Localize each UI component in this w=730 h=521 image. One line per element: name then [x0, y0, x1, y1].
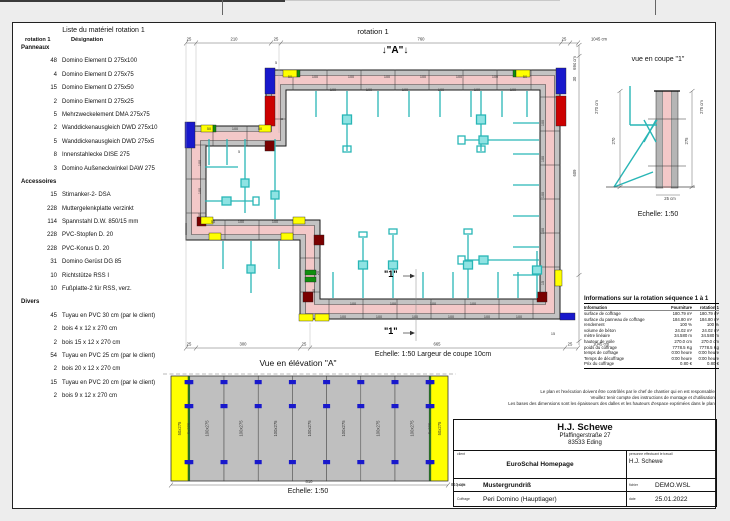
dim-label-top: 25	[562, 37, 567, 42]
material-row: 4Domino Element D 275x75	[21, 72, 186, 85]
material-qty: 2	[21, 326, 57, 339]
worker-value: H.J. Schewe	[629, 459, 714, 465]
material-qty: 2	[21, 366, 57, 379]
info-table-bottom-rule	[584, 368, 719, 369]
coupe-dim-label: 270	[611, 137, 616, 145]
panel-clamp	[391, 460, 398, 464]
panel-clamp	[323, 380, 330, 384]
dim-label-top: 1045 cm	[591, 37, 608, 42]
element-size-label: 100	[272, 220, 278, 224]
material-row: 2bois 4 x 12 x 270 cm	[21, 326, 186, 339]
fold-mark	[655, 0, 656, 15]
element-size-label: 5	[238, 150, 240, 154]
material-qty: 48	[21, 58, 57, 71]
section-a-mark: ↓"A"↓	[365, 45, 425, 56]
client-value: EuroSchal Homepage	[457, 461, 623, 468]
material-designation: Muttergelenkplatte verzinkt	[62, 206, 134, 219]
element-size-label: 100	[420, 75, 426, 79]
element-size-label: 50	[207, 127, 211, 131]
coupe-dim-label: 270 cm	[594, 100, 599, 114]
info-col-fourniture: Fourniture	[665, 305, 692, 310]
elevation-panel-label: 100x275	[410, 420, 415, 437]
material-designation: Mehrzweckelement DMA 275x75	[62, 112, 150, 125]
material-row: 2bois 15 x 12 x 270 cm	[21, 340, 186, 353]
info-table-title: Informations sur la rotation séquence 1 …	[584, 295, 719, 304]
formwork-cell: Coffrage Peri Domino (Hauptlager)	[454, 492, 626, 506]
elevation-dim-center: 810	[306, 479, 314, 484]
dim-label-bottom: 300	[240, 342, 248, 347]
element-size-label: 100	[366, 88, 372, 92]
element-size-label: 100	[430, 302, 436, 306]
element-size-label: 100	[330, 88, 336, 92]
material-row: 10Fußplatte-2 für RSS, verz.	[21, 286, 186, 299]
element-size-label: 100	[350, 302, 356, 306]
material-designation: Fußplatte-2 für RSS, verz.	[62, 286, 132, 299]
formwork-joints	[186, 70, 561, 320]
material-designation: bois 15 x 12 x 270 cm	[62, 340, 120, 353]
element-size-label: 100	[541, 228, 545, 234]
material-row: 15Stirnanker-2- DSA	[21, 192, 186, 205]
element-size-label: 100	[198, 188, 202, 194]
info-table-rows: surface de coffrage180.79 m²180.79 m²sur…	[584, 311, 719, 367]
material-designation: Domino Element D 275x75	[62, 72, 134, 85]
material-designation: bois 9 x 12 x 270 cm	[62, 393, 117, 406]
project-label: projet	[457, 483, 483, 487]
element-size-label: 100	[340, 315, 346, 319]
coupe-dimension-labels: 270 cm270275 cm27525 cm	[594, 100, 704, 201]
material-qty: 2	[21, 125, 57, 138]
panel-clamp	[289, 404, 296, 408]
element-size-label: 100	[474, 88, 480, 92]
elevation-panel-label: 100x275	[375, 420, 380, 437]
material-designation: PVC-Konus D. 20	[62, 246, 109, 259]
window-top-edge-light	[285, 0, 560, 1]
element-size-label: 100	[541, 120, 545, 126]
disclaimer-text: Le plan et l'exécution doivent être cont…	[403, 389, 716, 407]
drawing-sheet: 270 cm270275 cm27525 cm 5010010010010010…	[12, 22, 716, 509]
material-qty: 228	[21, 232, 57, 245]
date-label: date	[629, 497, 655, 501]
material-row: 5Mehrzweckelement DMA 275x75	[21, 112, 186, 125]
material-qty: 31	[21, 259, 57, 272]
dim-label-right: 609	[572, 169, 577, 177]
element-size-label: 100	[384, 75, 390, 79]
material-row: 228Muttergelenkplatte verzinkt	[21, 206, 186, 219]
dim-label-right: 30	[572, 76, 577, 81]
material-designation: Domino Element D 275x100	[62, 58, 137, 71]
client-label: client	[457, 452, 623, 456]
formwork-label: Coffrage	[457, 497, 483, 501]
dim-label-top: 25	[274, 37, 279, 42]
material-designation: Stirnanker-2- DSA	[62, 192, 111, 205]
material-row: 2Domino Element D 275x25	[21, 99, 186, 112]
title-block-divider	[626, 451, 627, 506]
worker-cell: personne effectuant le travail H.J. Sche…	[626, 451, 717, 479]
elevation-panel-label: 100x275	[273, 420, 278, 437]
element-size-label: 100	[312, 75, 318, 79]
elevation-panel-label: 100x275	[341, 420, 346, 437]
element-size-label: 100	[456, 75, 462, 79]
company-name: H.J. Schewe	[454, 420, 716, 433]
material-designation: Domino Element D 275x50	[62, 85, 134, 98]
material-designation: Tuyau en PVC 20 cm (par le client)	[62, 380, 155, 393]
dim-label-bottom: 25	[187, 342, 192, 347]
element-size-label: 100	[402, 88, 408, 92]
dim-label-bottom: 25	[302, 342, 307, 347]
material-designation: Tuyau en PVC 25 cm (par le client)	[62, 353, 155, 366]
material-designation: bois 20 x 12 x 270 cm	[62, 366, 120, 379]
material-section-header: Panneaux	[21, 45, 186, 58]
element-size-label: 50	[198, 213, 202, 217]
element-size-label: 100	[376, 315, 382, 319]
element-size-label: 50	[258, 127, 262, 131]
elevation-panel-label: 50x275	[177, 421, 182, 435]
panel-clamp	[357, 460, 364, 464]
elevation-panel-label: 50x275	[437, 421, 442, 435]
panel-clamp	[221, 404, 228, 408]
element-size-label: 5	[275, 61, 277, 65]
material-list-rows: Panneaux48Domino Element D 275x1004Domin…	[21, 45, 186, 407]
worker-label: personne effectuant le travail	[629, 452, 714, 456]
material-list-title: Liste du matériel rotation 1	[21, 27, 186, 34]
material-row: 15Domino Element D 275x50	[21, 85, 186, 98]
info-col-rotation: rotation 1	[692, 305, 719, 310]
client-cell: client EuroSchal Homepage	[454, 451, 626, 479]
material-qty: 2	[21, 99, 57, 112]
element-size-label: 20	[316, 271, 320, 275]
rotation-info-table: Informations sur la rotation séquence 1 …	[584, 295, 719, 369]
corner-pieces	[185, 68, 575, 321]
panel-clamp	[357, 404, 364, 408]
coupe-dim-label: 25 cm	[664, 196, 676, 201]
fold-mark	[222, 0, 223, 15]
material-qty: 15	[21, 192, 57, 205]
info-table-row: Prix du coffrage0.80 €0.80 €	[584, 361, 719, 367]
material-row: 48Domino Element D 275x100	[21, 58, 186, 71]
material-designation: Tuyau en PVC 30 cm (par le client)	[62, 313, 155, 326]
material-list: Liste du matériel rotation 1 rotation 1 …	[21, 27, 186, 407]
panel-clamp	[289, 460, 296, 464]
company-address-city: 83533 Eding	[454, 440, 716, 447]
panel-clamp	[255, 460, 262, 464]
element-size-label: 100	[484, 315, 490, 319]
material-section-header: Divers	[21, 299, 186, 312]
element-size-label: 100	[510, 88, 516, 92]
date-cell: date 25.01.2022	[626, 492, 717, 506]
project-value: Mustergrundriß	[483, 482, 531, 489]
material-qty: 228	[21, 206, 57, 219]
panel-clamp	[186, 460, 193, 464]
element-size-label: 100	[541, 156, 545, 162]
material-designation: bois 4 x 12 x 270 cm	[62, 326, 117, 339]
panel-clamp	[357, 380, 364, 384]
elevation-title: Vue en élévation "A"	[218, 358, 378, 368]
panel-clamp	[186, 404, 193, 408]
panel-clamp	[427, 380, 434, 384]
material-row: 45Tuyau en PVC 30 cm (par le client)	[21, 313, 186, 326]
material-designation: Richtstütze RSS I	[62, 273, 109, 286]
element-size-label: 100	[412, 315, 418, 319]
plan-walls	[186, 70, 561, 320]
material-qty: 2	[21, 340, 57, 353]
material-qty: 4	[21, 72, 57, 85]
material-row: 8Innenstahlecke DISE 275	[21, 152, 186, 165]
material-row: 15Tuyau en PVC 20 cm (par le client)	[21, 380, 186, 393]
material-qty: 10	[21, 273, 57, 286]
material-row: 228PVC-Stopfen D. 20	[21, 232, 186, 245]
element-size-label: 15	[541, 281, 545, 285]
element-size-label: 30	[312, 289, 316, 293]
material-qty: 5	[21, 112, 57, 125]
company-address-street: Pfaffingerstraße 27	[454, 433, 716, 440]
element-size-label: 100	[238, 220, 244, 224]
element-size-label: 100	[390, 302, 396, 306]
material-row: 3Domino Außeneckwinkel DAW 275	[21, 166, 186, 179]
element-size-label: 100	[348, 75, 354, 79]
coupe-title: vue en coupe "1"	[603, 56, 713, 63]
plan-scale-note: Echelle: 1:50 Largeur de coupe 10cm	[268, 351, 598, 358]
element-size-label: 100	[541, 192, 545, 198]
material-qty: 54	[21, 353, 57, 366]
file-value: DEMO.WSL	[655, 482, 690, 489]
coupe-view: 270 cm270275 cm27525 cm	[594, 86, 704, 201]
material-qty: 8	[21, 152, 57, 165]
material-qty: 15	[21, 85, 57, 98]
window-top-edge	[0, 0, 285, 2]
elevation-panel-label: 100x275	[307, 420, 312, 437]
material-section-header: Accessoires	[21, 179, 186, 192]
dim-label-top: 25	[187, 37, 192, 42]
date-value: 25.01.2022	[655, 496, 688, 503]
panel-clamp	[221, 460, 228, 464]
element-size-label: 100	[492, 75, 498, 79]
panel-clamp	[186, 380, 193, 384]
element-size-label: 15	[551, 332, 555, 336]
elevation-panel-label: 100x275	[204, 420, 209, 437]
section-1-mark: "1"	[384, 326, 408, 336]
element-size-label: 100	[516, 315, 522, 319]
material-row: 228PVC-Konus D. 20	[21, 246, 186, 259]
panel-clamp	[323, 460, 330, 464]
element-size-label: 50	[211, 220, 215, 224]
panel-clamp	[391, 380, 398, 384]
material-list-header: rotation 1 Désignation	[21, 37, 186, 43]
info-table-header: Information Fourniture rotation 1	[584, 304, 719, 311]
element-size-label: 50	[523, 75, 527, 79]
info-col-information: Information	[584, 305, 665, 310]
material-designation: PVC-Stopfen D. 20	[62, 232, 113, 245]
material-list-col-qty: rotation 1	[21, 37, 63, 43]
dim-label-bottom: 25	[568, 342, 573, 347]
element-size-label: 100	[198, 160, 202, 166]
file-label: fichier	[629, 483, 655, 487]
material-qty: 45	[21, 313, 57, 326]
panel-clamp	[427, 460, 434, 464]
coupe-brace	[614, 86, 657, 187]
material-qty: 3	[21, 166, 57, 179]
dim-label-right: 694 cm	[572, 56, 577, 70]
material-qty: 10	[21, 286, 57, 299]
dim-label-top: 760	[418, 37, 426, 42]
panel-clamp	[289, 380, 296, 384]
material-row: 2bois 20 x 12 x 270 cm	[21, 366, 186, 379]
material-qty: 2	[21, 393, 57, 406]
material-qty: 15	[21, 380, 57, 393]
coupe-scale: Echelle: 1:50	[608, 211, 708, 218]
dim-label-top: 210	[231, 37, 239, 42]
panel-clamp	[255, 404, 262, 408]
title-block-company: H.J. Schewe Pfaffingerstraße 27 83533 Ed…	[454, 420, 716, 451]
coupe-dim-label: 275 cm	[699, 100, 704, 114]
material-qty: 114	[21, 219, 57, 232]
material-designation: Innenstahlecke DISE 275	[62, 152, 130, 165]
material-designation: Wanddickenausgleich DWD 275x5	[62, 139, 154, 152]
element-size-label: 100	[232, 127, 238, 131]
file-cell: fichier DEMO.WSL	[626, 479, 717, 492]
page: { "sheet": { "material_list": { "title":…	[0, 0, 730, 521]
panel-clamp	[391, 404, 398, 408]
material-designation: Domino Gerüst DG 85	[62, 259, 121, 272]
disclaimer-line: Les bases des dimensions sont les épaiss…	[403, 401, 716, 407]
title-block: H.J. Schewe Pfaffingerstraße 27 83533 Ed…	[453, 419, 717, 507]
material-row: 114Spannstahl D.W. 850/15 mm	[21, 219, 186, 232]
material-qty: 5	[21, 139, 57, 152]
material-row: 31Domino Gerüst DG 85	[21, 259, 186, 272]
element-size-label: 100	[448, 315, 454, 319]
panel-clamp	[221, 380, 228, 384]
elevation-scale: Echelle: 1:50	[243, 488, 373, 495]
material-row: 54Tuyau en PVC 25 cm (par le client)	[21, 353, 186, 366]
panel-clamp	[255, 380, 262, 384]
material-designation: Domino Außeneckwinkel DAW 275	[62, 166, 155, 179]
material-qty: 228	[21, 246, 57, 259]
project-cell: projet Mustergrundriß	[454, 479, 626, 492]
panel-clamp	[323, 404, 330, 408]
section-1-mark: "1"	[384, 269, 408, 279]
element-size-label: 100	[470, 302, 476, 306]
formwork-value: Peri Domino (Hauptlager)	[483, 496, 557, 503]
element-size-label: 8	[280, 118, 284, 120]
dim-label-bottom: 665	[434, 342, 442, 347]
element-size-label: 50	[288, 75, 292, 79]
element-size-label: 100	[438, 88, 444, 92]
material-designation: Domino Element D 275x25	[62, 99, 134, 112]
plan-title: rotation 1	[313, 27, 433, 36]
material-list-col-designation: Désignation	[63, 37, 103, 43]
elevation-panel-label: 100x275	[239, 420, 244, 437]
material-row: 10Richtstütze RSS I	[21, 273, 186, 286]
coupe-dim-label: 275	[684, 137, 689, 145]
material-designation: Wanddickenausgleich DWD 275x10	[62, 125, 158, 138]
wall-braces	[205, 91, 542, 298]
material-row: 2bois 9 x 12 x 270 cm	[21, 393, 186, 406]
material-row: 2Wanddickenausgleich DWD 275x10	[21, 125, 186, 138]
material-designation: Spannstahl D.W. 850/15 mm	[62, 219, 138, 232]
material-row: 5Wanddickenausgleich DWD 275x5	[21, 139, 186, 152]
